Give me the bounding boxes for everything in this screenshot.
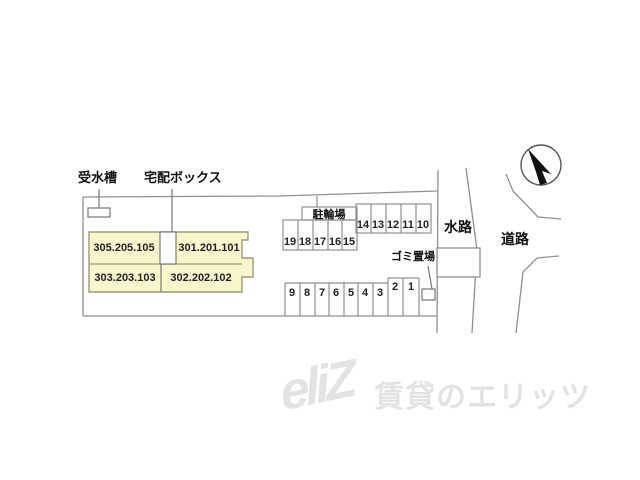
car-stall-11: 11	[402, 219, 414, 231]
car-stall-2: 2	[392, 281, 398, 293]
car-stall-14: 14	[357, 219, 369, 231]
site-boundary-top	[83, 191, 437, 197]
water-tank-label: 受水槽	[78, 171, 117, 184]
road-lower-edge	[516, 256, 559, 333]
water-tank	[88, 189, 110, 217]
car-stall-8: 8	[304, 287, 310, 299]
bike-stall-16: 16	[329, 236, 341, 248]
garbage-area-label: ゴミ置場	[391, 252, 435, 263]
waterway-label: 水路	[444, 220, 472, 234]
compass-icon	[521, 145, 561, 185]
delivery-box-location	[160, 232, 176, 264]
garbage-area	[422, 266, 435, 300]
car-stall-1: 1	[408, 281, 414, 293]
unit-label-302: 302.202.102	[170, 272, 231, 284]
bicycle-parking-label: 駐輪場	[313, 206, 346, 222]
road-label: 道路	[501, 232, 529, 246]
unit-label-303: 303.203.103	[94, 272, 155, 284]
car-stall-13: 13	[372, 219, 384, 231]
unit-label-301: 301.201.101	[178, 242, 239, 254]
bike-stall-19: 19	[284, 236, 296, 248]
car-stall-6: 6	[333, 287, 339, 299]
bike-stall-18: 18	[299, 236, 311, 248]
bike-stall-15: 15	[343, 236, 355, 248]
bike-stall-17: 17	[314, 236, 326, 248]
car-stall-9: 9	[289, 287, 295, 299]
car-stall-3: 3	[377, 287, 383, 299]
unit-label-305: 305.205.105	[93, 242, 154, 254]
car-stall-10: 10	[417, 219, 429, 231]
site-plan-page: 受水槽 宅配ボックス 駐輪場 ゴミ置場 水路 道路 305.205.105 30…	[0, 0, 640, 480]
car-stall-7: 7	[319, 287, 325, 299]
road-edges	[506, 174, 561, 333]
car-stall-5: 5	[348, 287, 354, 299]
delivery-box-label: 宅配ボックス	[144, 171, 222, 184]
bridge	[437, 248, 480, 277]
car-stall-12: 12	[387, 219, 399, 231]
car-stall-4: 4	[362, 287, 368, 299]
